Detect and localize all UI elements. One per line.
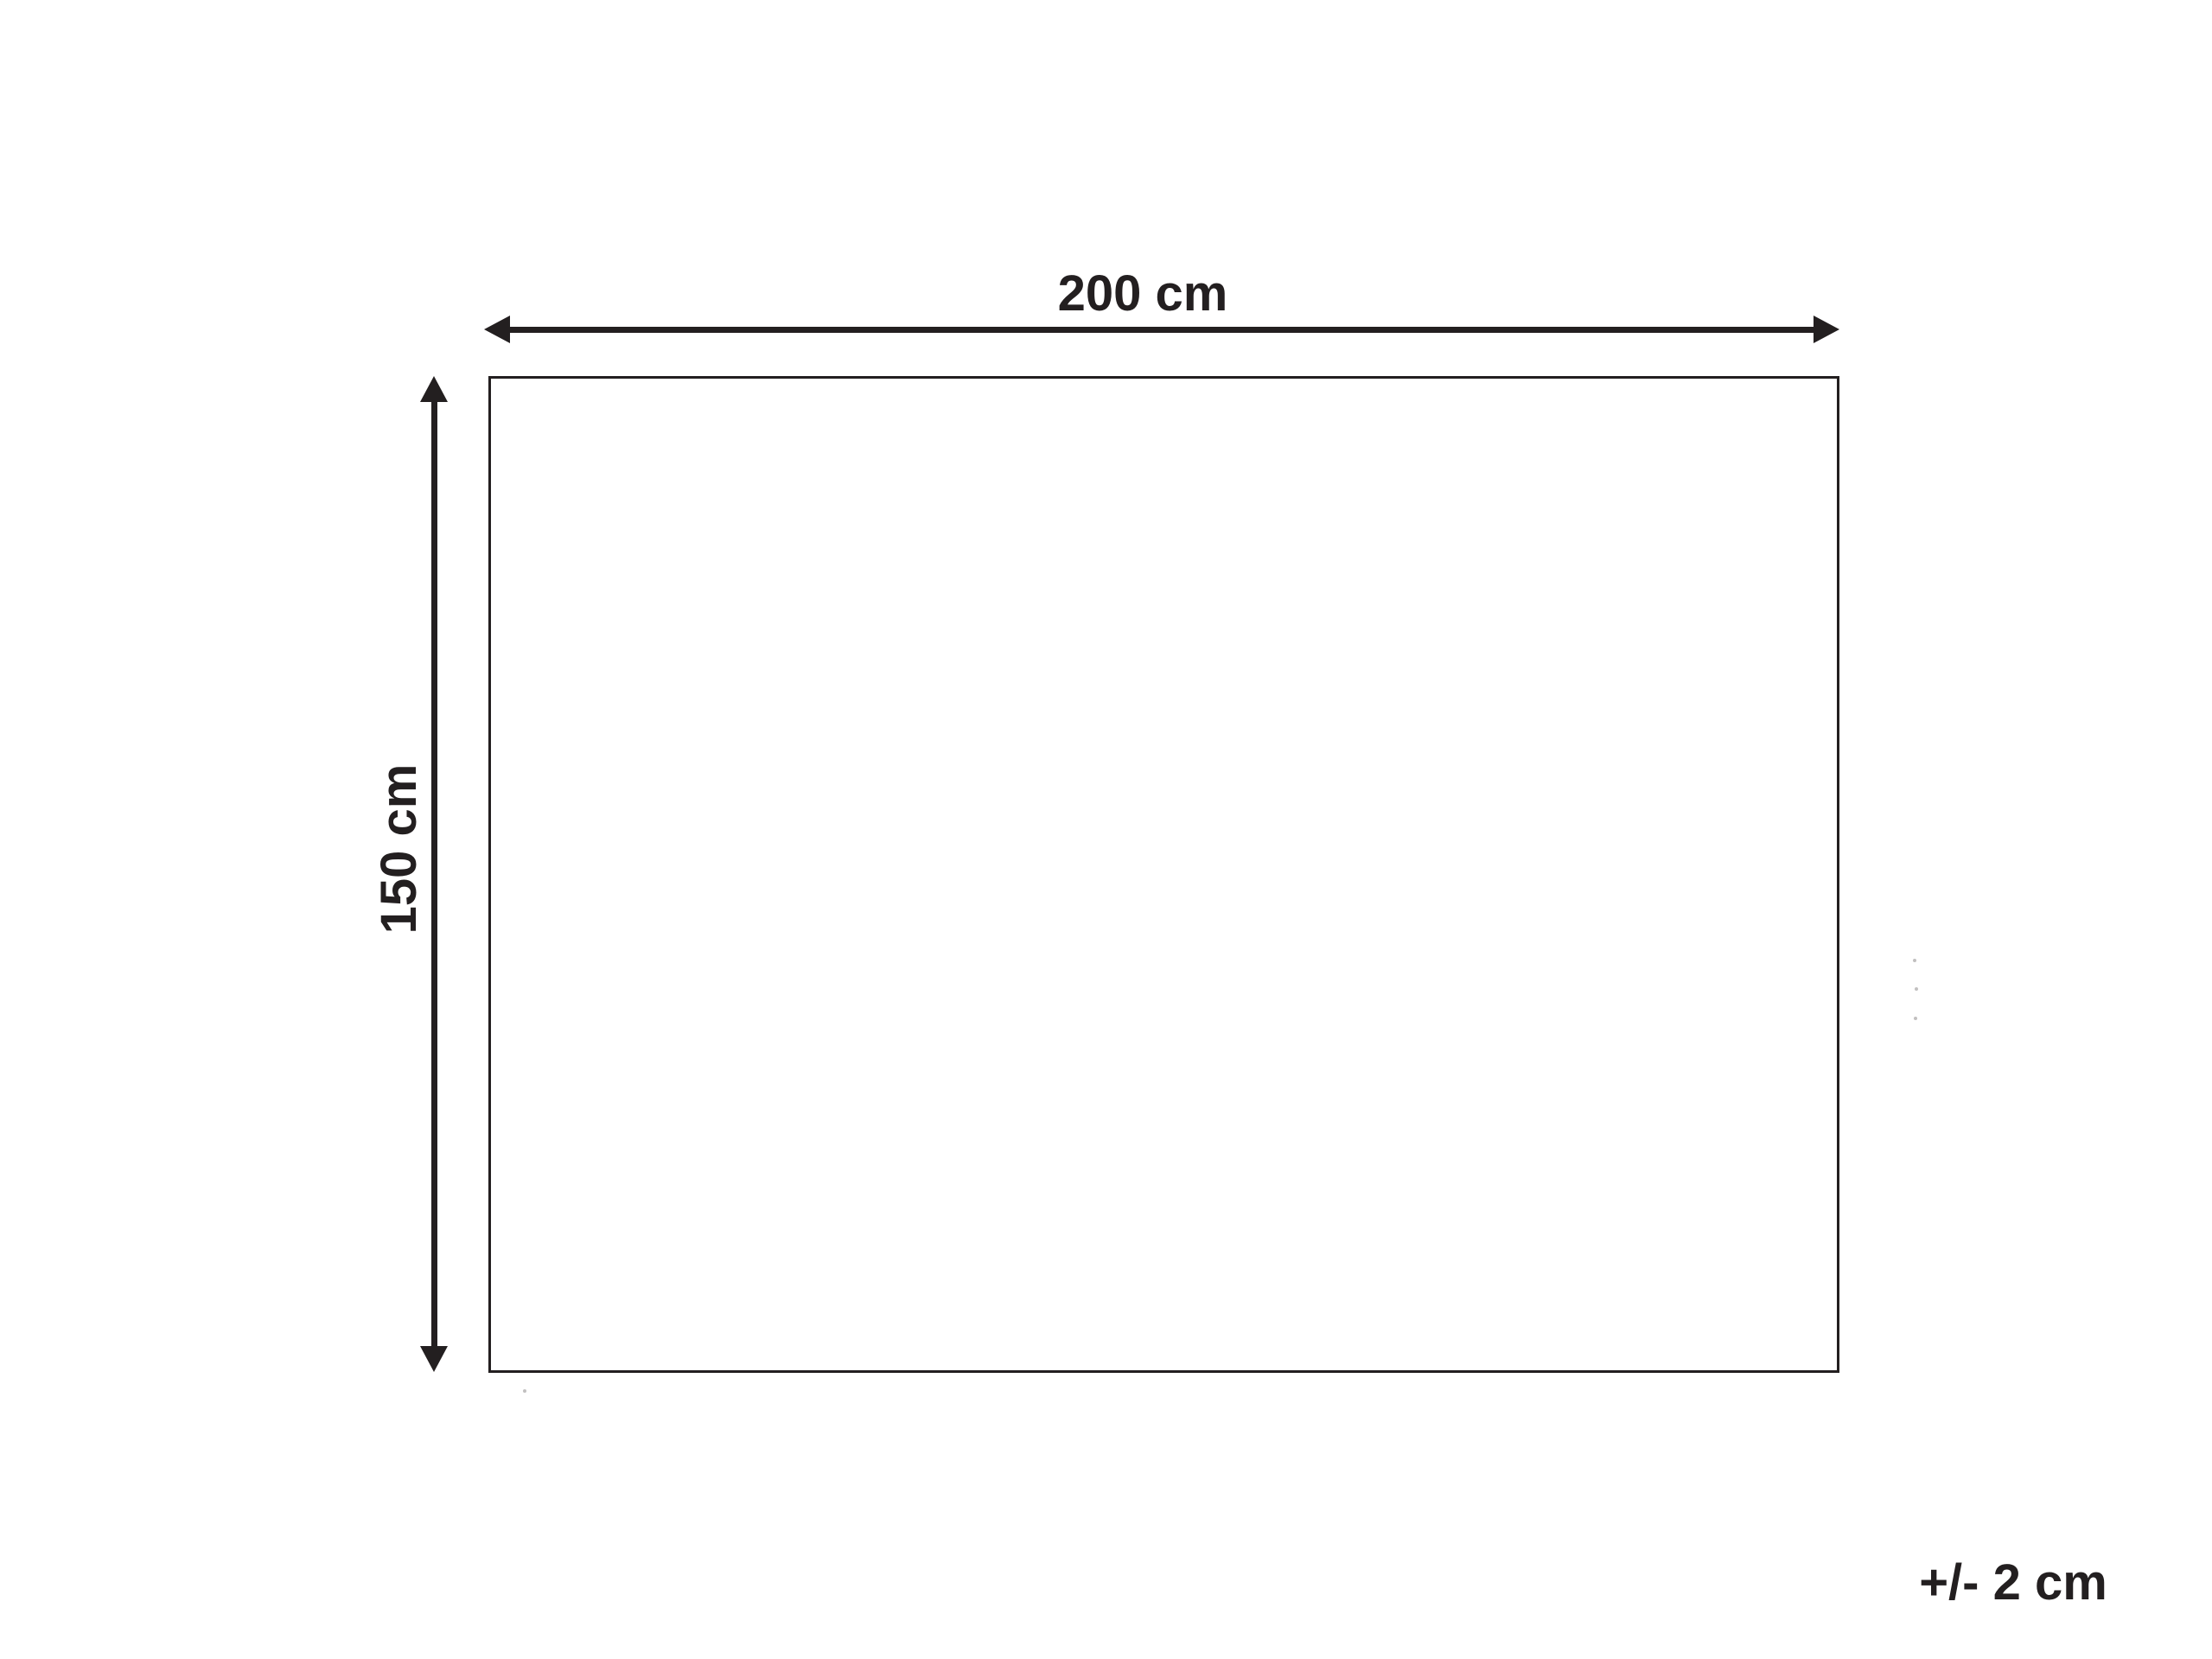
arrow-right-icon <box>1814 316 1839 343</box>
speck <box>1915 987 1918 991</box>
arrow-left-icon <box>484 316 510 343</box>
speck <box>523 1389 526 1393</box>
tolerance-label: +/- 2 cm <box>1919 1558 2107 1608</box>
speck <box>1914 1017 1917 1020</box>
product-outline-rectangle <box>488 376 1839 1373</box>
speck <box>1913 959 1916 962</box>
width-dimension-label: 200 cm <box>1058 269 1228 319</box>
height-arrow-line <box>431 401 437 1348</box>
arrow-up-icon <box>420 376 448 402</box>
arrow-down-icon <box>420 1346 448 1372</box>
dimension-diagram-canvas: 200 cm 150 cm +/- 2 cm <box>0 0 2212 1659</box>
width-arrow-line <box>507 327 1815 333</box>
height-dimension-label: 150 cm <box>374 764 424 935</box>
